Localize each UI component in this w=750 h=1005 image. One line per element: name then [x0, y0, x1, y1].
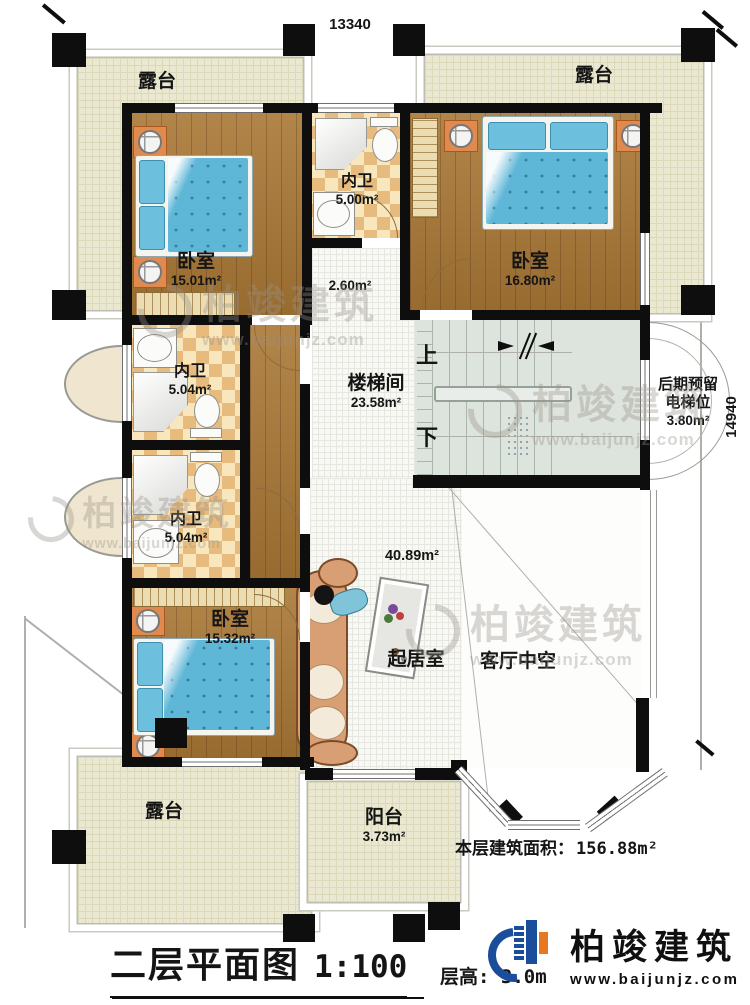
bed-pillow: [550, 122, 608, 150]
bay-window-lower: [64, 477, 122, 557]
room-label-terrace-top-left: 露台: [125, 70, 189, 93]
window: [122, 345, 132, 421]
window: [640, 233, 650, 305]
door-opening: [252, 315, 300, 325]
door-opening: [300, 488, 310, 534]
window: [318, 103, 394, 113]
stairs-mat: [506, 415, 532, 459]
column: [283, 24, 315, 56]
bed-mattress: [486, 152, 608, 224]
column: [52, 830, 86, 864]
company-logo: 柏竣建筑 www.baijunjz.com: [488, 918, 739, 988]
toilet-tank: [370, 117, 398, 127]
wall: [122, 578, 310, 588]
bed-pillow: [139, 160, 165, 204]
flower-decor: [396, 612, 404, 620]
room-label-elevator: 后期预留 电梯位 3.80m²: [642, 376, 734, 429]
wardrobe: [412, 118, 438, 218]
wall: [305, 768, 333, 780]
room-label-living-void: 客厅中空: [458, 650, 578, 673]
floor-area-value: 156.88m²: [576, 839, 658, 859]
title-block: 二层平面图 1:100: [110, 936, 407, 998]
bay-window-upper: [64, 345, 122, 423]
wall: [413, 475, 650, 488]
column: [155, 718, 187, 748]
stairs-guide-line-down: [432, 436, 632, 437]
plan-title: 二层平面图: [110, 936, 300, 988]
lamp-icon: [136, 609, 160, 633]
plan-scale: 1:100: [314, 949, 407, 985]
column: [52, 33, 86, 67]
room-label-corridor: 2.60m²: [305, 278, 395, 294]
person-head: [314, 585, 334, 605]
eave-line-left: [24, 616, 26, 928]
room-label-bath-lower: 内卫 5.04m²: [136, 510, 236, 546]
toilet-bowl: [372, 128, 398, 162]
wall: [640, 330, 650, 362]
column: [681, 285, 715, 315]
room-label-bedroom-bottom-left: 卧室 15.32m²: [172, 608, 288, 648]
company-logo-icon: [488, 918, 558, 988]
stairs-break-arrow-left: [498, 341, 514, 351]
window: [182, 757, 262, 767]
window: [122, 478, 132, 558]
stairs-handrail: [434, 386, 572, 402]
room-label-bath-middle: 内卫 5.04m²: [140, 362, 240, 398]
wall: [636, 698, 649, 772]
window: [333, 769, 415, 779]
break-mark: [716, 28, 738, 47]
room-label-terrace-top-right: 露台: [562, 64, 626, 87]
toilet-tank: [190, 452, 222, 462]
floor-area-note: 本层建筑面积： 156.88m²: [455, 834, 658, 859]
nightstand: [444, 120, 478, 152]
toilet-bowl: [194, 394, 220, 428]
bed-pillow: [488, 122, 546, 150]
dimension-right: 14940: [723, 357, 741, 477]
nightstand: [133, 126, 167, 158]
column: [393, 24, 425, 56]
wall: [400, 103, 410, 320]
room-label-living-room: 起居室: [368, 648, 464, 671]
bed-pillow: [137, 642, 163, 686]
sofa-cushion: [306, 706, 346, 740]
sofa-arm: [318, 558, 358, 588]
lamp-icon: [138, 130, 162, 154]
break-mark: [702, 10, 724, 29]
terrace-bottom-left: [78, 757, 311, 923]
wall: [240, 325, 250, 587]
bed-mattress: [168, 158, 248, 252]
floor-area-label: 本层建筑面积：: [455, 834, 574, 859]
living-void-floor: [462, 480, 642, 768]
wall: [122, 103, 132, 767]
door-opening: [300, 338, 310, 384]
title-underline: [112, 997, 424, 999]
bay-window-left: [455, 766, 513, 827]
room-label-bedroom-top-right: 卧室 16.80m²: [472, 250, 588, 290]
stairs-break-arrow-right: [538, 341, 554, 351]
company-name: 柏竣建筑: [570, 919, 739, 970]
wall: [640, 440, 650, 490]
door-opening: [300, 592, 310, 642]
nightstand: [131, 606, 165, 636]
column: [428, 902, 460, 930]
toilet-tank: [190, 428, 222, 438]
dimension-top: 13340: [315, 16, 385, 33]
room-label-terrace-bottom-left: 露台: [132, 800, 196, 823]
wardrobe: [135, 292, 235, 316]
door-opening: [420, 310, 472, 320]
room-label-stairwell: 楼梯间 23.58m²: [312, 372, 440, 412]
bed-pillow: [139, 206, 165, 250]
room-label-bath-top: 内卫 5.00m²: [316, 172, 398, 208]
bay-window-right: [585, 768, 668, 832]
room-label-living-area: 40.89m²: [364, 548, 460, 566]
flower-decor: [384, 614, 393, 623]
window: [175, 103, 263, 113]
break-mark: [42, 3, 66, 24]
floor-plan: 露台 露台 卧室 15.01m² 内卫 5.00m² 卧室 16.80m² 2.…: [0, 0, 750, 1005]
column: [52, 290, 86, 320]
column: [681, 28, 715, 62]
toilet-bowl: [194, 463, 220, 497]
lamp-icon: [449, 124, 473, 148]
void-side-window: [650, 490, 657, 698]
bay-window-front: [508, 820, 580, 830]
door-opening: [362, 238, 400, 248]
break-mark: [695, 739, 714, 756]
stairs-down-label: 下: [416, 420, 438, 452]
stairs-up-label: 上: [416, 338, 438, 370]
sink-basin: [137, 334, 172, 362]
room-label-balcony: 阳台 3.73m²: [334, 806, 434, 846]
wall: [122, 440, 250, 450]
company-website: www.baijunjz.com: [570, 971, 739, 988]
room-label-bedroom-top-left: 卧室 15.01m²: [138, 250, 254, 290]
sofa-cushion: [304, 664, 344, 700]
stairs-guide-line-up: [432, 352, 572, 353]
bed-mattress: [164, 640, 270, 730]
